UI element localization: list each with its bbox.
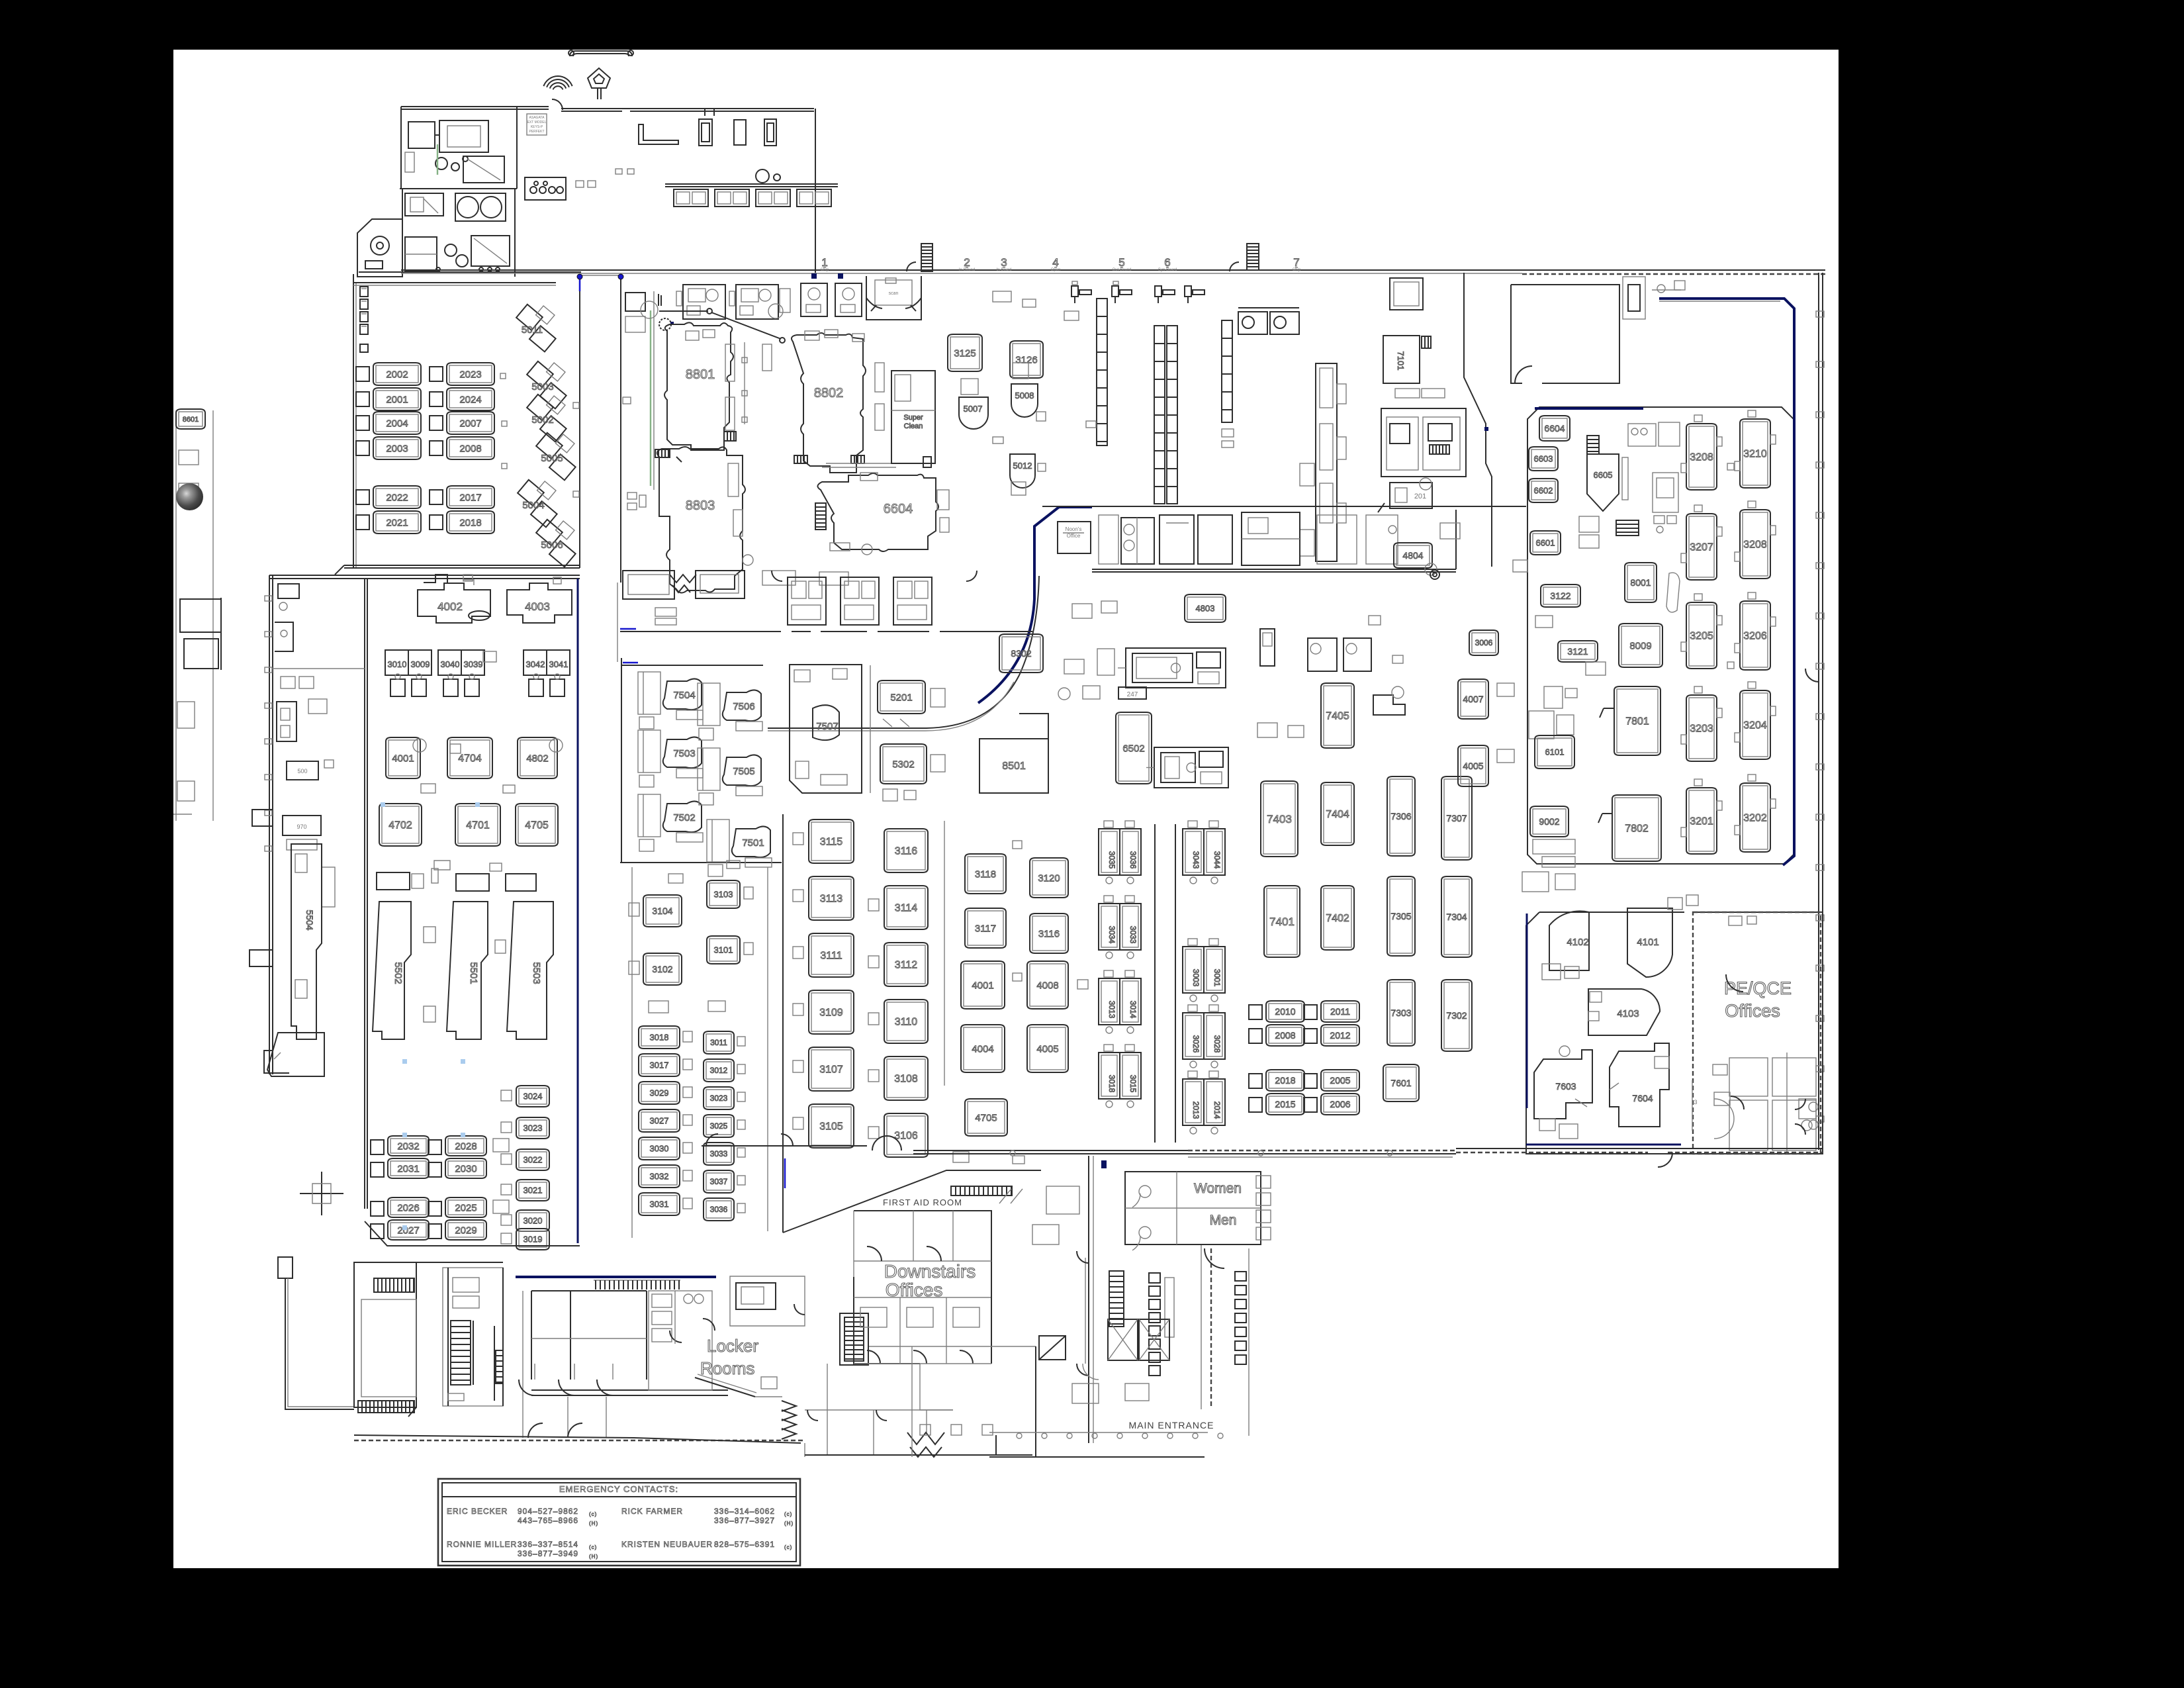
svg-text:Rooms: Rooms — [700, 1358, 754, 1378]
svg-text:2001: 2001 — [386, 394, 408, 405]
svg-text:3112: 3112 — [895, 960, 918, 971]
svg-text:Out-Bound: Out-Bound — [1112, 268, 1131, 272]
svg-text:3022: 3022 — [523, 1155, 543, 1165]
svg-text:4802: 4802 — [526, 753, 548, 764]
svg-text:3003: 3003 — [1191, 969, 1201, 987]
svg-text:4008: 4008 — [1036, 980, 1058, 991]
svg-text:6602: 6602 — [1534, 486, 1553, 496]
svg-text:3205: 3205 — [1690, 631, 1713, 642]
svg-text:5503: 5503 — [531, 962, 542, 984]
svg-text:2024: 2024 — [459, 394, 481, 405]
svg-text:7501: 7501 — [742, 837, 764, 849]
svg-text:Offices: Offices — [1725, 1001, 1780, 1021]
svg-text:3036: 3036 — [1128, 851, 1138, 869]
svg-text:Locker: Locker — [707, 1336, 758, 1356]
svg-text:2030: 2030 — [455, 1163, 477, 1174]
svg-text:6601: 6601 — [1536, 538, 1555, 548]
svg-text:3125: 3125 — [954, 348, 976, 359]
svg-text:3033: 3033 — [1128, 926, 1138, 944]
svg-text:5008: 5008 — [1015, 391, 1034, 400]
svg-text:5504: 5504 — [304, 910, 315, 930]
svg-text:8001: 8001 — [1630, 577, 1651, 588]
svg-text:970: 970 — [296, 823, 306, 830]
svg-text:3043: 3043 — [1191, 851, 1201, 869]
svg-text:8501: 8501 — [1002, 761, 1026, 772]
svg-text:4001: 4001 — [972, 980, 993, 991]
svg-text:2: 2 — [964, 256, 970, 269]
svg-text:7504: 7504 — [673, 690, 695, 701]
svg-text:7402: 7402 — [1326, 913, 1349, 924]
svg-text:7604: 7604 — [1632, 1093, 1653, 1103]
svg-text:3014: 3014 — [1128, 1001, 1138, 1019]
svg-text:2006: 2006 — [1330, 1099, 1350, 1109]
svg-text:336–877–3927: 336–877–3927 — [714, 1516, 775, 1525]
svg-text:7505: 7505 — [733, 766, 754, 777]
svg-text:3034: 3034 — [1107, 926, 1116, 944]
svg-text:2022: 2022 — [386, 492, 408, 503]
svg-text:7101: 7101 — [1396, 352, 1406, 371]
svg-text:Syn-Board: Syn-Board — [1158, 268, 1177, 272]
svg-text:4007: 4007 — [1463, 694, 1483, 704]
svg-text:3015: 3015 — [1128, 1075, 1138, 1093]
svg-text:3025: 3025 — [710, 1121, 728, 1131]
svg-text:7401: 7401 — [1269, 915, 1295, 928]
svg-text:3019: 3019 — [523, 1235, 543, 1244]
svg-text:Noon's: Noon's — [1066, 526, 1082, 532]
svg-text:3210: 3210 — [1743, 449, 1767, 460]
svg-text:2008: 2008 — [459, 443, 481, 454]
svg-text:3041: 3041 — [549, 659, 569, 669]
svg-text:KRISTEN NEUBAUER: KRISTEN NEUBAUER — [621, 1540, 713, 1549]
svg-text:3208: 3208 — [1690, 452, 1713, 463]
svg-text:Open: Open — [1051, 268, 1061, 272]
svg-text:(H): (H) — [589, 1521, 598, 1526]
svg-text:7303: 7303 — [1390, 1008, 1411, 1018]
svg-text:2021: 2021 — [386, 517, 408, 528]
svg-text:2003: 2003 — [386, 443, 408, 454]
svg-text:8802: 8802 — [814, 386, 844, 400]
svg-text:2014: 2014 — [1212, 1102, 1222, 1119]
svg-text:7403: 7403 — [1267, 813, 1292, 825]
svg-text:In-Board: In-Board — [996, 268, 1011, 272]
svg-text:(H): (H) — [589, 1554, 598, 1560]
svg-text:6605: 6605 — [1594, 470, 1613, 480]
svg-text:(c): (c) — [589, 1511, 597, 1517]
svg-text:7506: 7506 — [733, 701, 754, 712]
svg-text:3010: 3010 — [388, 659, 407, 669]
svg-text:7503: 7503 — [673, 748, 695, 759]
svg-text:3028: 3028 — [1212, 1035, 1222, 1053]
svg-text:2023: 2023 — [459, 369, 481, 380]
svg-text:336–877–3949: 336–877–3949 — [518, 1549, 578, 1558]
svg-text:2015: 2015 — [1275, 1099, 1295, 1109]
svg-text:3118: 3118 — [975, 868, 996, 880]
svg-text:5012: 5012 — [1013, 461, 1032, 471]
svg-text:5502: 5502 — [392, 962, 404, 984]
svg-text:2017: 2017 — [459, 492, 481, 503]
svg-text:5501: 5501 — [468, 962, 479, 984]
svg-text:3036: 3036 — [710, 1205, 728, 1214]
svg-text:4803: 4803 — [1196, 604, 1215, 614]
svg-text:MAIN ENTRANCE: MAIN ENTRANCE — [1129, 1420, 1214, 1430]
svg-text:3: 3 — [1694, 1099, 1697, 1105]
svg-text:7601: 7601 — [1390, 1078, 1411, 1088]
svg-text:5201: 5201 — [890, 692, 912, 703]
svg-text:2007: 2007 — [459, 418, 481, 429]
svg-text:7306: 7306 — [1390, 811, 1411, 821]
svg-text:3111: 3111 — [820, 951, 842, 962]
svg-text:2004: 2004 — [386, 418, 408, 429]
svg-text:3024: 3024 — [523, 1092, 543, 1102]
svg-text:Chip: Chip — [821, 268, 829, 272]
svg-text:3204: 3204 — [1743, 720, 1767, 731]
svg-text:4103: 4103 — [1617, 1008, 1639, 1019]
svg-text:2012: 2012 — [1330, 1030, 1350, 1041]
svg-text:ERIC BECKER: ERIC BECKER — [447, 1507, 508, 1516]
svg-text:8009: 8009 — [1629, 640, 1651, 651]
svg-text:ASAGATA: ASAGATA — [529, 116, 545, 120]
svg-text:3023: 3023 — [710, 1094, 728, 1103]
svg-text:247: 247 — [1127, 691, 1138, 698]
svg-text:3109: 3109 — [819, 1008, 843, 1019]
svg-text:3208: 3208 — [1743, 539, 1767, 551]
svg-text:3032: 3032 — [650, 1172, 669, 1182]
svg-text:2018: 2018 — [1275, 1075, 1295, 1086]
svg-text:RICK FARMER: RICK FARMER — [621, 1507, 683, 1516]
svg-text:4804: 4804 — [1402, 550, 1423, 561]
svg-text:4102: 4102 — [1567, 937, 1588, 948]
svg-text:2011: 2011 — [1330, 1006, 1350, 1017]
svg-text:(c): (c) — [784, 1544, 792, 1550]
svg-text:3018: 3018 — [650, 1033, 669, 1043]
svg-text:(c): (c) — [784, 1511, 792, 1517]
svg-text:3029: 3029 — [650, 1088, 669, 1098]
svg-text:5004: 5004 — [522, 500, 544, 511]
svg-text:2008: 2008 — [1275, 1030, 1295, 1041]
svg-text:2010: 2010 — [1275, 1006, 1295, 1017]
svg-text:8801: 8801 — [686, 367, 715, 382]
svg-text:3117: 3117 — [975, 923, 996, 934]
svg-text:4702: 4702 — [388, 820, 412, 831]
svg-text:3011: 3011 — [710, 1038, 727, 1047]
svg-text:4005: 4005 — [1036, 1043, 1058, 1055]
svg-text:4005: 4005 — [1463, 761, 1483, 771]
svg-text:3121: 3121 — [1567, 646, 1588, 657]
svg-text:3110: 3110 — [895, 1017, 918, 1028]
svg-text:3113: 3113 — [820, 894, 843, 905]
svg-text:6604: 6604 — [1544, 423, 1565, 434]
svg-text:7305: 7305 — [1390, 911, 1411, 921]
svg-text:5: 5 — [1118, 256, 1124, 269]
svg-text:6: 6 — [1164, 256, 1170, 269]
svg-text:3017: 3017 — [650, 1060, 669, 1070]
svg-text:3104: 3104 — [652, 906, 672, 916]
svg-text:3039: 3039 — [464, 659, 483, 669]
svg-text:Men: Men — [1210, 1213, 1237, 1228]
svg-text:3040: 3040 — [441, 659, 460, 669]
svg-text:FIRST AID ROOM: FIRST AID ROOM — [883, 1197, 962, 1207]
svg-text:5006: 5006 — [541, 539, 563, 551]
svg-text:7404: 7404 — [1326, 809, 1349, 820]
svg-text:2026: 2026 — [397, 1202, 419, 1213]
svg-text:3013: 3013 — [1107, 1001, 1116, 1019]
svg-text:3001: 3001 — [1212, 969, 1222, 987]
svg-text:7603: 7603 — [1555, 1081, 1576, 1092]
svg-text:3018: 3018 — [1107, 1075, 1116, 1093]
svg-text:3207: 3207 — [1690, 542, 1713, 553]
svg-text:3037: 3037 — [710, 1177, 728, 1186]
svg-text:2032: 2032 — [397, 1141, 419, 1152]
svg-text:EMERGENCY CONTACTS:: EMERGENCY CONTACTS: — [559, 1484, 678, 1494]
svg-text:8803: 8803 — [686, 498, 715, 513]
svg-text:3035: 3035 — [1107, 851, 1116, 869]
svg-text:3202: 3202 — [1743, 813, 1767, 824]
svg-text:4705: 4705 — [975, 1112, 997, 1123]
svg-text:3: 3 — [1001, 256, 1007, 269]
svg-text:3103: 3103 — [714, 890, 733, 900]
svg-text:3116: 3116 — [1038, 928, 1060, 939]
svg-text:6603: 6603 — [1534, 454, 1553, 464]
svg-text:6101: 6101 — [1545, 747, 1565, 757]
svg-text:2018: 2018 — [459, 517, 481, 528]
svg-text:Clean: Clean — [904, 422, 923, 430]
svg-text:904–527–9862: 904–527–9862 — [518, 1507, 578, 1516]
svg-text:7502: 7502 — [673, 812, 695, 823]
svg-text:3006: 3006 — [1475, 638, 1493, 647]
svg-text:4002: 4002 — [437, 600, 463, 613]
svg-text:4004: 4004 — [972, 1043, 993, 1055]
svg-text:4701: 4701 — [466, 820, 490, 831]
svg-text:3120: 3120 — [1038, 872, 1060, 884]
svg-text:2002: 2002 — [386, 369, 408, 380]
svg-text:5002: 5002 — [531, 414, 553, 426]
svg-text:3203: 3203 — [1690, 724, 1713, 735]
svg-text:scan: scan — [889, 291, 899, 296]
svg-text:Super: Super — [903, 414, 923, 422]
svg-text:Women: Women — [1194, 1181, 1242, 1196]
svg-text:7405: 7405 — [1326, 711, 1349, 722]
svg-text:3122: 3122 — [1550, 590, 1570, 601]
svg-text:7: 7 — [1293, 256, 1299, 269]
svg-text:7307: 7307 — [1446, 813, 1467, 823]
svg-text:7302: 7302 — [1446, 1010, 1467, 1021]
svg-text:(H): (H) — [784, 1521, 794, 1526]
svg-text:3026: 3026 — [1191, 1035, 1201, 1053]
svg-text:336–314–6062: 336–314–6062 — [714, 1507, 775, 1516]
svg-text:6502: 6502 — [1122, 743, 1144, 754]
svg-text:KEYS-P: KEYS-P — [531, 125, 543, 129]
svg-text:3030: 3030 — [650, 1144, 669, 1154]
svg-text:Chip: Chip — [1293, 268, 1301, 272]
svg-text:3126: 3126 — [1015, 354, 1037, 365]
svg-text:2025: 2025 — [455, 1202, 477, 1213]
svg-text:3201: 3201 — [1690, 816, 1713, 827]
svg-text:4: 4 — [1052, 256, 1058, 269]
svg-text:4003: 4003 — [525, 600, 550, 613]
svg-text:8302: 8302 — [1011, 648, 1031, 659]
svg-text:7507: 7507 — [816, 721, 838, 732]
svg-text:7802: 7802 — [1625, 823, 1649, 835]
svg-text:3107: 3107 — [819, 1064, 843, 1076]
svg-text:2028: 2028 — [455, 1141, 477, 1152]
svg-text:In-Bound: In-Bound — [959, 268, 975, 272]
svg-text:3116: 3116 — [895, 846, 918, 857]
svg-text:4704: 4704 — [458, 753, 482, 765]
svg-text:7801: 7801 — [1625, 716, 1649, 727]
svg-text:4001: 4001 — [392, 753, 414, 764]
svg-text:5005: 5005 — [541, 453, 563, 464]
svg-text:6604: 6604 — [884, 502, 913, 516]
svg-text:3031: 3031 — [650, 1199, 669, 1209]
svg-text:3206: 3206 — [1743, 631, 1767, 642]
svg-text:3102: 3102 — [652, 964, 672, 974]
svg-text:3027: 3027 — [650, 1116, 669, 1126]
svg-text:4705: 4705 — [525, 820, 549, 831]
svg-text:2029: 2029 — [455, 1225, 477, 1236]
svg-text:3114: 3114 — [895, 903, 918, 914]
svg-text:3033: 3033 — [710, 1149, 728, 1158]
svg-text:5011: 5011 — [522, 324, 543, 336]
svg-text:Offices: Offices — [886, 1280, 943, 1300]
svg-text:3042: 3042 — [526, 659, 545, 669]
svg-text:2027: 2027 — [397, 1225, 419, 1236]
svg-text:5003: 5003 — [531, 381, 553, 393]
svg-text:828–575–6391: 828–575–6391 — [714, 1540, 775, 1549]
svg-text:3101: 3101 — [714, 945, 733, 955]
svg-text:3023: 3023 — [523, 1123, 543, 1133]
svg-text:3044: 3044 — [1212, 851, 1222, 869]
svg-text:5007: 5007 — [964, 404, 983, 414]
svg-text:Office: Office — [1067, 533, 1081, 539]
svg-text:443–765–8966: 443–765–8966 — [518, 1516, 578, 1525]
svg-text:(c): (c) — [589, 1544, 597, 1550]
svg-text:2005: 2005 — [1330, 1075, 1350, 1086]
svg-text:3105: 3105 — [819, 1121, 843, 1133]
svg-text:3108: 3108 — [894, 1074, 918, 1085]
svg-text:3021: 3021 — [523, 1186, 543, 1196]
svg-text:2031: 2031 — [397, 1163, 419, 1174]
svg-text:3115: 3115 — [820, 837, 843, 848]
svg-text:201: 201 — [1414, 492, 1426, 500]
svg-text:7304: 7304 — [1446, 912, 1467, 922]
svg-text:Downstairs: Downstairs — [884, 1261, 976, 1282]
svg-text:8601: 8601 — [183, 416, 199, 424]
svg-text:RONNIE MILLER: RONNIE MILLER — [447, 1540, 517, 1549]
svg-text:2013: 2013 — [1191, 1102, 1201, 1119]
svg-text:3020: 3020 — [523, 1216, 543, 1226]
svg-text:336–337–8514: 336–337–8514 — [518, 1540, 578, 1549]
svg-text:1: 1 — [821, 256, 827, 269]
svg-text:9002: 9002 — [1539, 816, 1559, 827]
svg-text:3012: 3012 — [710, 1066, 728, 1075]
svg-text:EXT MODEL: EXT MODEL — [527, 120, 547, 124]
svg-text:PERFEKT: PERFEKT — [529, 130, 544, 134]
svg-text:5302: 5302 — [892, 759, 914, 770]
svg-text:3009: 3009 — [411, 659, 430, 669]
svg-text:500: 500 — [297, 768, 307, 774]
svg-text:4101: 4101 — [1637, 937, 1659, 948]
